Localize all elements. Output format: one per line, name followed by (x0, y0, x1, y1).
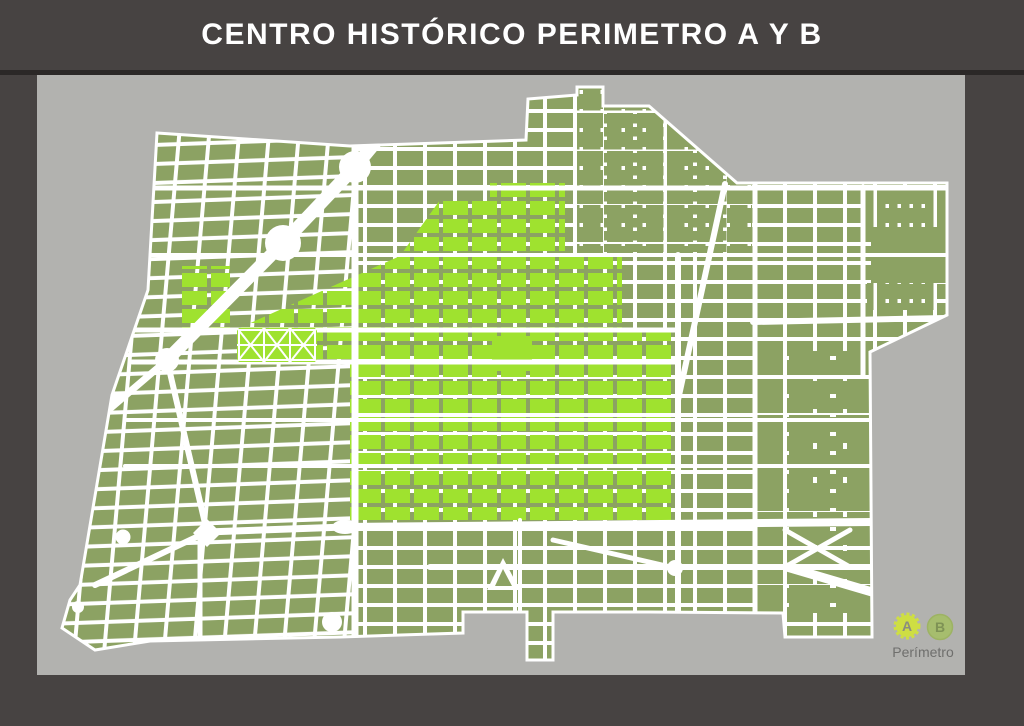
glorieta-circle (667, 560, 683, 576)
map-panel: A B Perímetro (37, 75, 965, 675)
legend-caption: Perímetro (892, 644, 954, 660)
glorieta-circle (155, 348, 179, 372)
glorieta-circle (72, 601, 84, 613)
plaza-ellipse (332, 520, 358, 534)
arcos-de-belen (207, 527, 345, 532)
glorieta-circle (322, 612, 342, 632)
alameda-park (237, 328, 317, 362)
poster-page: { "header": { "title": "CENTRO HISTÓRICO… (0, 0, 1024, 726)
page-title: CENTRO HISTÓRICO PERIMETRO A Y B (201, 18, 822, 52)
glorieta-circle (116, 530, 131, 545)
centro-historico-map (37, 75, 965, 675)
glorieta-circle (339, 151, 371, 183)
legend-b-badge: B (928, 615, 953, 640)
legend-b-label: B (935, 619, 945, 635)
legend-a-label: A (902, 618, 912, 634)
zocalo-plaza (492, 336, 532, 371)
glorieta-circle (265, 225, 301, 261)
street-izazaga (345, 522, 872, 527)
street-wing-cross (753, 318, 945, 322)
legend-a-badge: A (896, 615, 918, 637)
legend: A B Perímetro (877, 603, 997, 669)
header-bar: CENTRO HISTÓRICO PERIMETRO A Y B (0, 0, 1024, 70)
map-body (37, 75, 965, 675)
